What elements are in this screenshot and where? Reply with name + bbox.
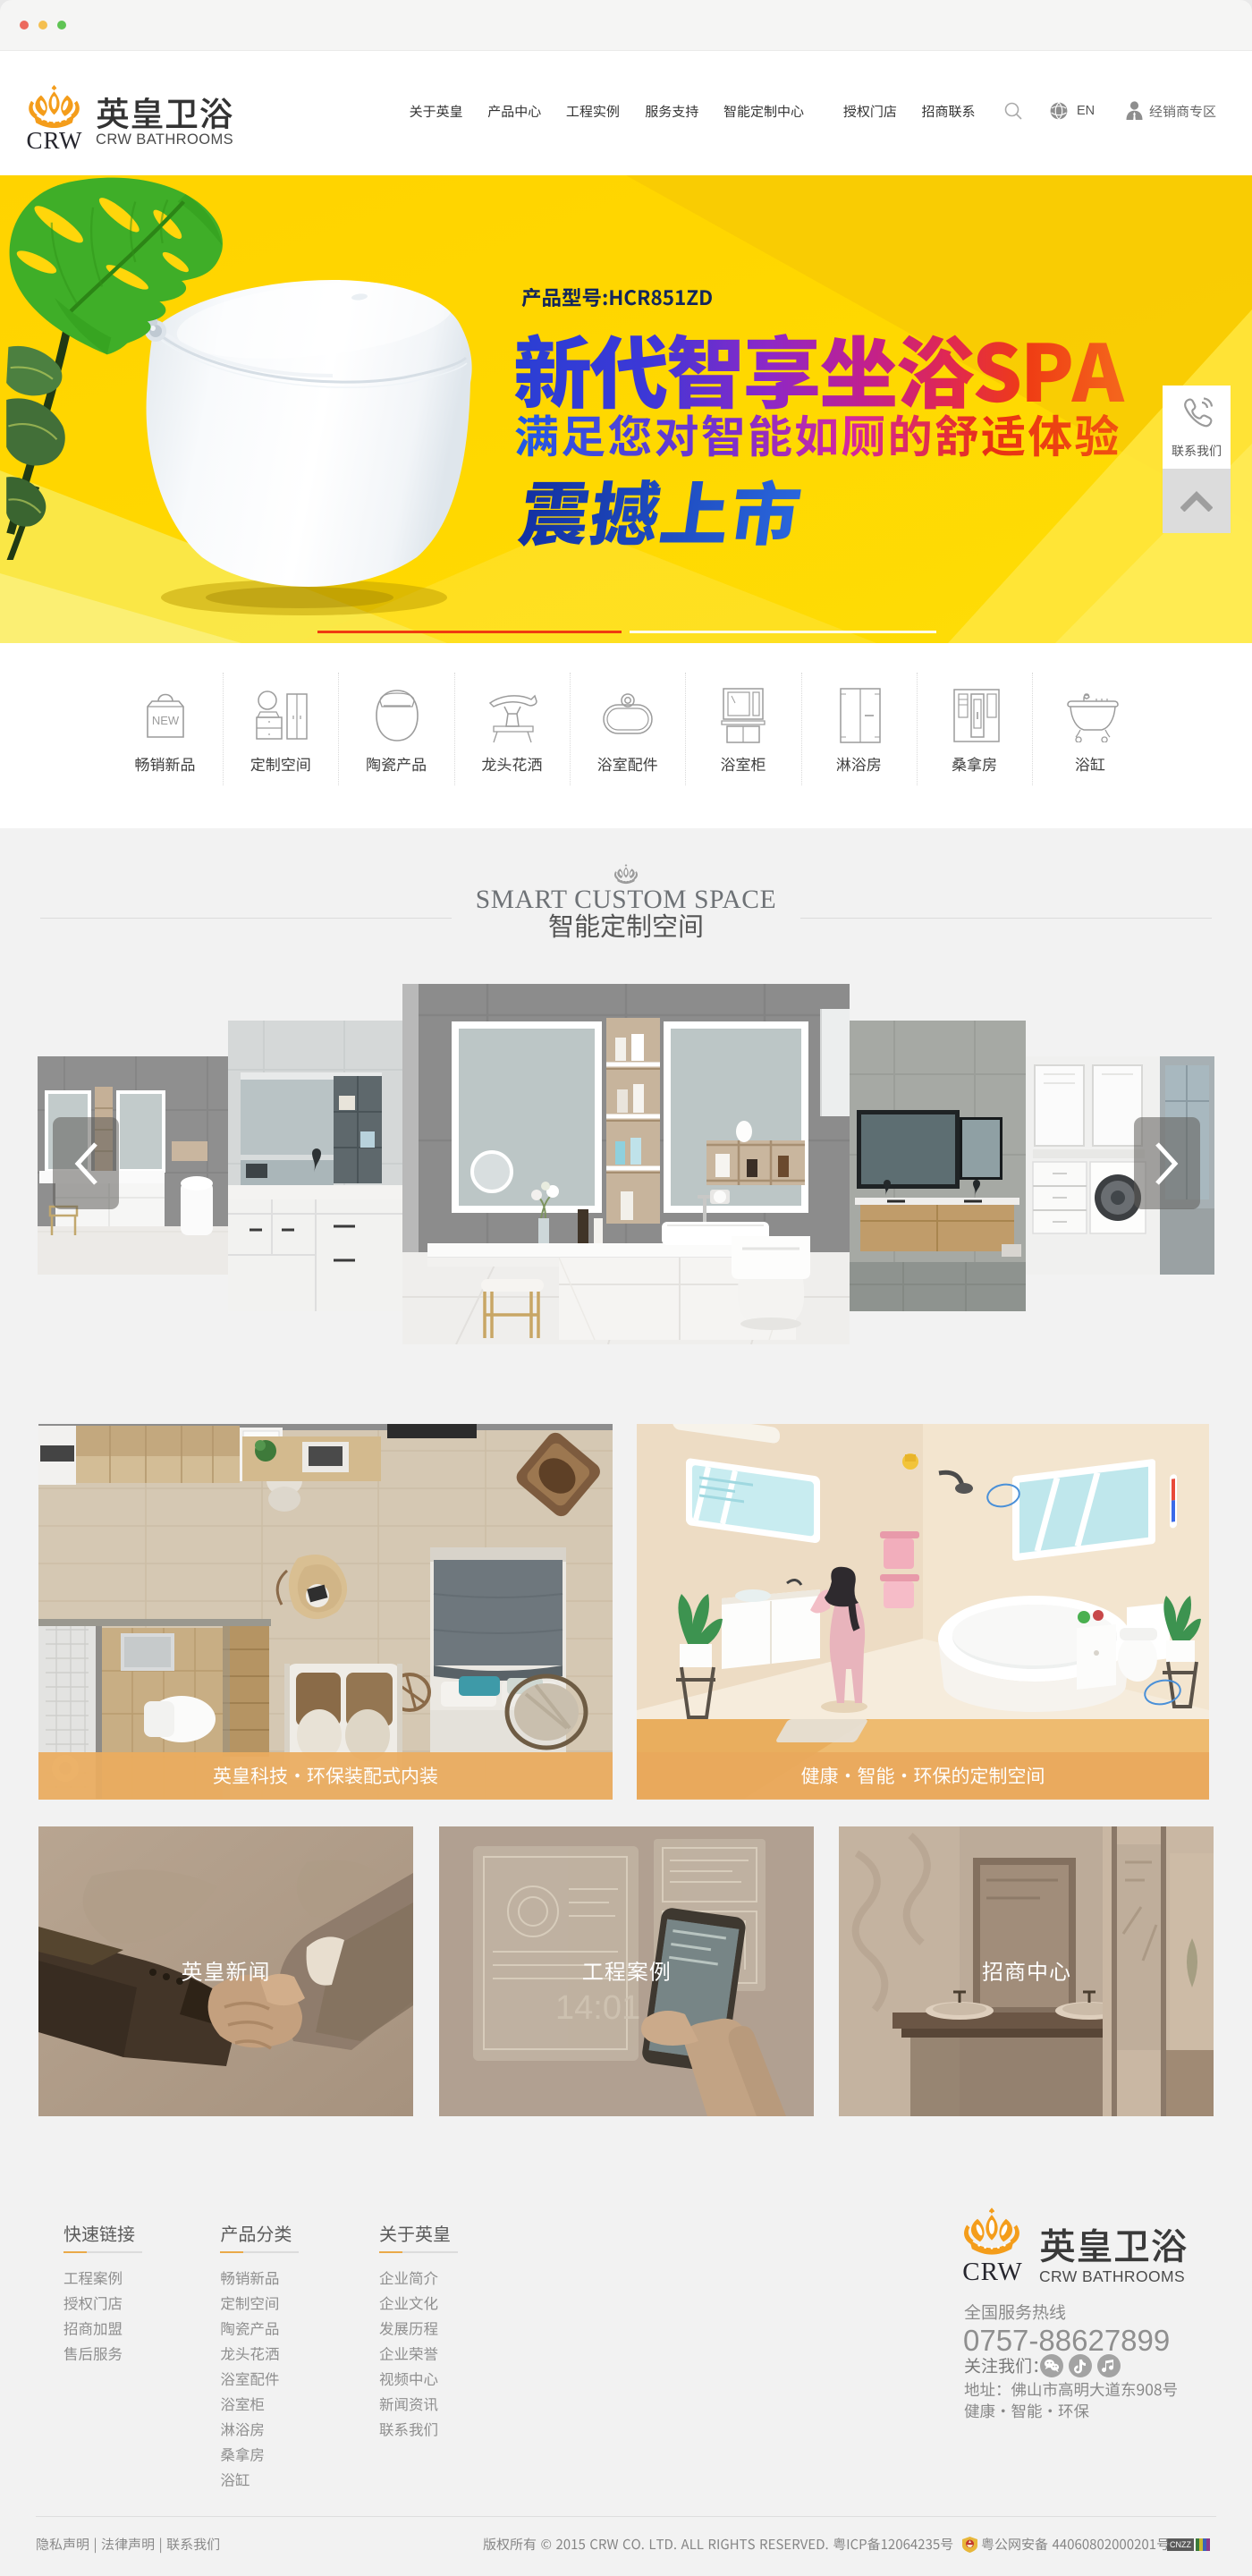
svg-text:NEW: NEW (152, 714, 180, 727)
svg-text:14:01: 14:01 (555, 1989, 640, 2027)
